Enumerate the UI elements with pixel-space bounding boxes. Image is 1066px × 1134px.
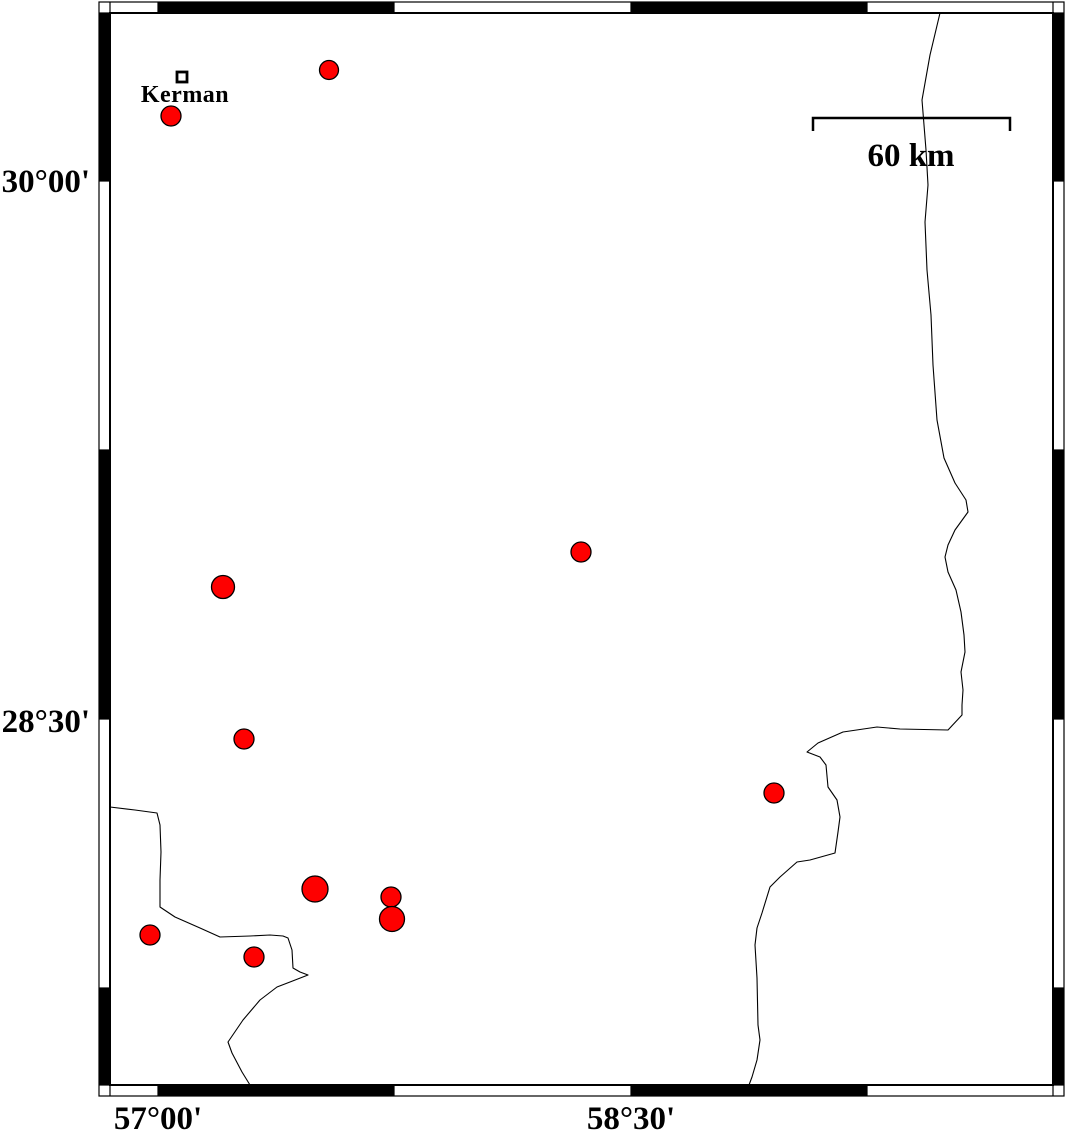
epicenter-point [140,925,160,945]
frame-segment [158,1085,394,1096]
map-canvas: Kerman 60 km 30°00' 28°30' 57°00' 58°30' [0,0,1066,1134]
lon-label-57-00: 57°00' [114,1101,202,1134]
frame-segment [158,2,394,13]
epicenter-point [764,783,784,803]
epicenter-point [571,542,591,562]
frame-segment [631,2,867,13]
frame-segment [1053,450,1064,719]
frame-segment [1053,13,1064,181]
epicenter-point [161,106,181,126]
epicenter-point [212,576,235,599]
frame-segment [1053,988,1064,1085]
epicenter-point [380,907,405,932]
lon-label-58-30: 58°30' [587,1101,675,1134]
frame-segment [99,13,110,181]
lat-label-28-30: 28°30' [2,704,90,740]
lat-label-30-00: 30°00' [2,164,90,200]
epicenter-point [320,61,339,80]
epicenter-point [302,876,328,902]
frame-segment [99,988,110,1085]
frame-segment [99,450,110,719]
epicenter-point [234,729,254,749]
scale-bar-label: 60 km [867,138,954,174]
epicenter-point [381,887,401,907]
city-square-icon [177,72,187,82]
epicenter-point [244,947,264,967]
frame-segment [631,1085,867,1096]
city-label: Kerman [141,82,229,108]
